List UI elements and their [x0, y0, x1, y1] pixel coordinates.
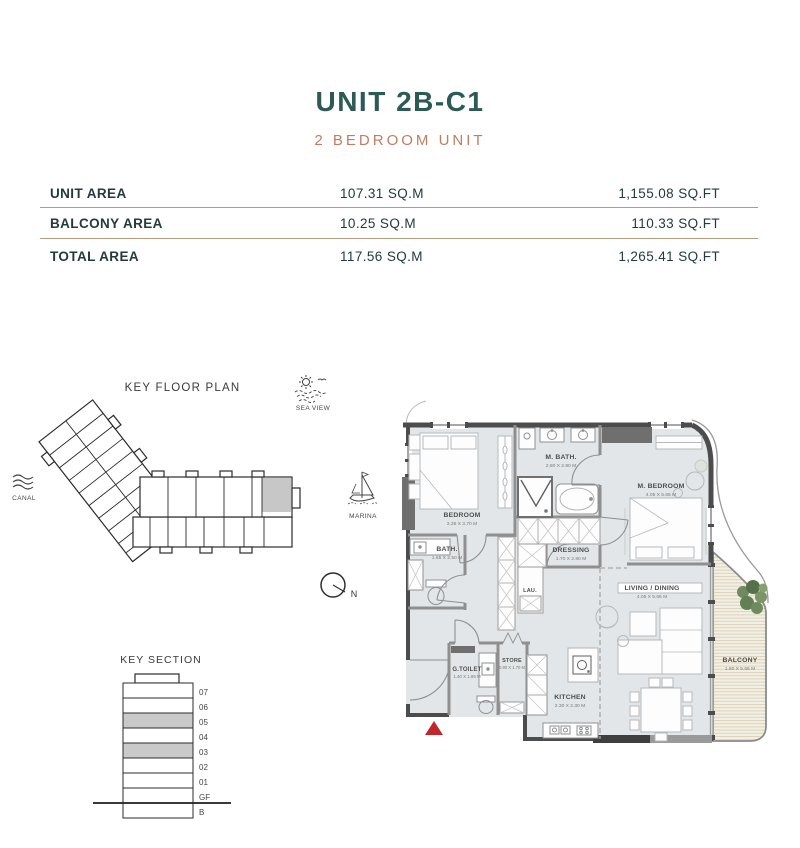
- entrance-marker: [425, 721, 443, 735]
- row-sqft: 1,265.41 SQ.FT: [550, 249, 758, 264]
- row-sqft: 1,155.08 SQ.FT: [550, 186, 758, 201]
- row-sqm: 10.25 SQ.M: [340, 216, 550, 231]
- svg-text:3.35 X 3.70 M: 3.35 X 3.70 M: [447, 521, 477, 527]
- unit-plan-page: UNIT 2B-C1 2 BEDROOM UNIT UNIT AREA 107.…: [0, 0, 800, 848]
- key-plan-building: [34, 396, 300, 566]
- svg-text:M. BEDROOM: M. BEDROOM: [638, 483, 685, 490]
- svg-text:4.05 X 5.65 M: 4.05 X 5.65 M: [646, 492, 676, 498]
- sea-view-label: SEA VIEW: [296, 405, 331, 412]
- svg-text:03: 03: [199, 748, 208, 757]
- svg-text:1.65 X 2.50 M: 1.65 X 2.50 M: [432, 555, 462, 561]
- room-label-laundry: LAU.: [523, 588, 537, 594]
- north-label: N: [351, 589, 358, 599]
- bottom-wall-dark: [593, 735, 650, 743]
- svg-text:0.90 X 1.70 M: 0.90 X 1.70 M: [499, 665, 526, 670]
- svg-text:DRESSING: DRESSING: [552, 547, 589, 554]
- svg-text:KITCHEN: KITCHEN: [554, 694, 586, 701]
- svg-text:M. BATH.: M. BATH.: [545, 454, 576, 461]
- neighbor-curve: [406, 401, 426, 424]
- highlighted-floor-03: [123, 743, 193, 758]
- svg-text:1.70 X 2.80 M: 1.70 X 2.80 M: [556, 556, 586, 562]
- marina-label: MARINA: [349, 513, 377, 520]
- page-subtitle: 2 BEDROOM UNIT: [0, 132, 800, 149]
- svg-text:BALCONY: BALCONY: [722, 657, 757, 664]
- svg-text:06: 06: [199, 703, 208, 712]
- marina-boat-icon: [348, 472, 378, 504]
- floor-labels: 07 06 05 04 03 02 01 GF B: [199, 688, 210, 817]
- key-floor-plan-drawing: CANAL SEA VIEW MARINA: [0, 370, 395, 615]
- svg-text:05: 05: [199, 718, 208, 727]
- canal-waves-icon: [13, 475, 33, 489]
- svg-text:1.80 X 5.65 M: 1.80 X 5.65 M: [725, 666, 755, 672]
- row-label: BALCONY AREA: [40, 216, 340, 231]
- balcony-area: [713, 552, 766, 741]
- svg-text:G.TOILET: G.TOILET: [452, 667, 481, 673]
- row-sqm: 117.56 SQ.M: [340, 249, 550, 264]
- table-row-total-area: TOTAL AREA 117.56 SQ.M 1,265.41 SQ.FT: [40, 239, 758, 273]
- sea-view-icon: [295, 375, 327, 403]
- table-row-unit-area: UNIT AREA 107.31 SQ.M 1,155.08 SQ.FT: [40, 179, 758, 208]
- svg-text:4.05 X 5.65 M: 4.05 X 5.65 M: [637, 594, 667, 600]
- key-section-title: KEY SECTION: [111, 654, 211, 666]
- svg-text:2.30 X 2.30 M: 2.30 X 2.30 M: [555, 703, 585, 709]
- table-row-balcony-area: BALCONY AREA 10.25 SQ.M 110.33 SQ.FT: [40, 208, 758, 239]
- svg-text:BEDROOM: BEDROOM: [444, 512, 481, 519]
- compass-icon: [321, 573, 345, 597]
- svg-text:1.40 X 1.95 M: 1.40 X 1.95 M: [453, 674, 481, 679]
- highlighted-unit: [262, 478, 291, 512]
- svg-text:B: B: [199, 808, 204, 817]
- page-title: UNIT 2B-C1: [0, 86, 800, 118]
- canal-label: CANAL: [12, 495, 36, 502]
- key-section-drawing: 07 06 05 04 03 02 01 GF B: [85, 668, 235, 833]
- row-label: UNIT AREA: [40, 186, 340, 201]
- svg-text:LAU.: LAU.: [523, 588, 537, 594]
- row-label: TOTAL AREA: [40, 249, 340, 264]
- svg-text:2.80 X 2.80 M: 2.80 X 2.80 M: [546, 463, 576, 469]
- row-sqm: 107.31 SQ.M: [340, 186, 550, 201]
- svg-text:BATH.: BATH.: [436, 546, 457, 553]
- svg-text:GF: GF: [199, 793, 210, 802]
- svg-text:01: 01: [199, 778, 208, 787]
- svg-text:02: 02: [199, 763, 208, 772]
- floor-plan-drawing: BEDROOM 3.35 X 3.70 M M. BATH. 2.80 X 2.…: [398, 400, 770, 757]
- svg-text:04: 04: [199, 733, 208, 742]
- highlighted-floor-05: [123, 713, 193, 728]
- svg-text:STORE: STORE: [502, 658, 522, 664]
- svg-text:07: 07: [199, 688, 208, 697]
- svg-text:LIVING / DINING: LIVING / DINING: [624, 585, 679, 592]
- row-sqft: 110.33 SQ.FT: [550, 216, 758, 231]
- area-table: UNIT AREA 107.31 SQ.M 1,155.08 SQ.FT BAL…: [40, 179, 758, 273]
